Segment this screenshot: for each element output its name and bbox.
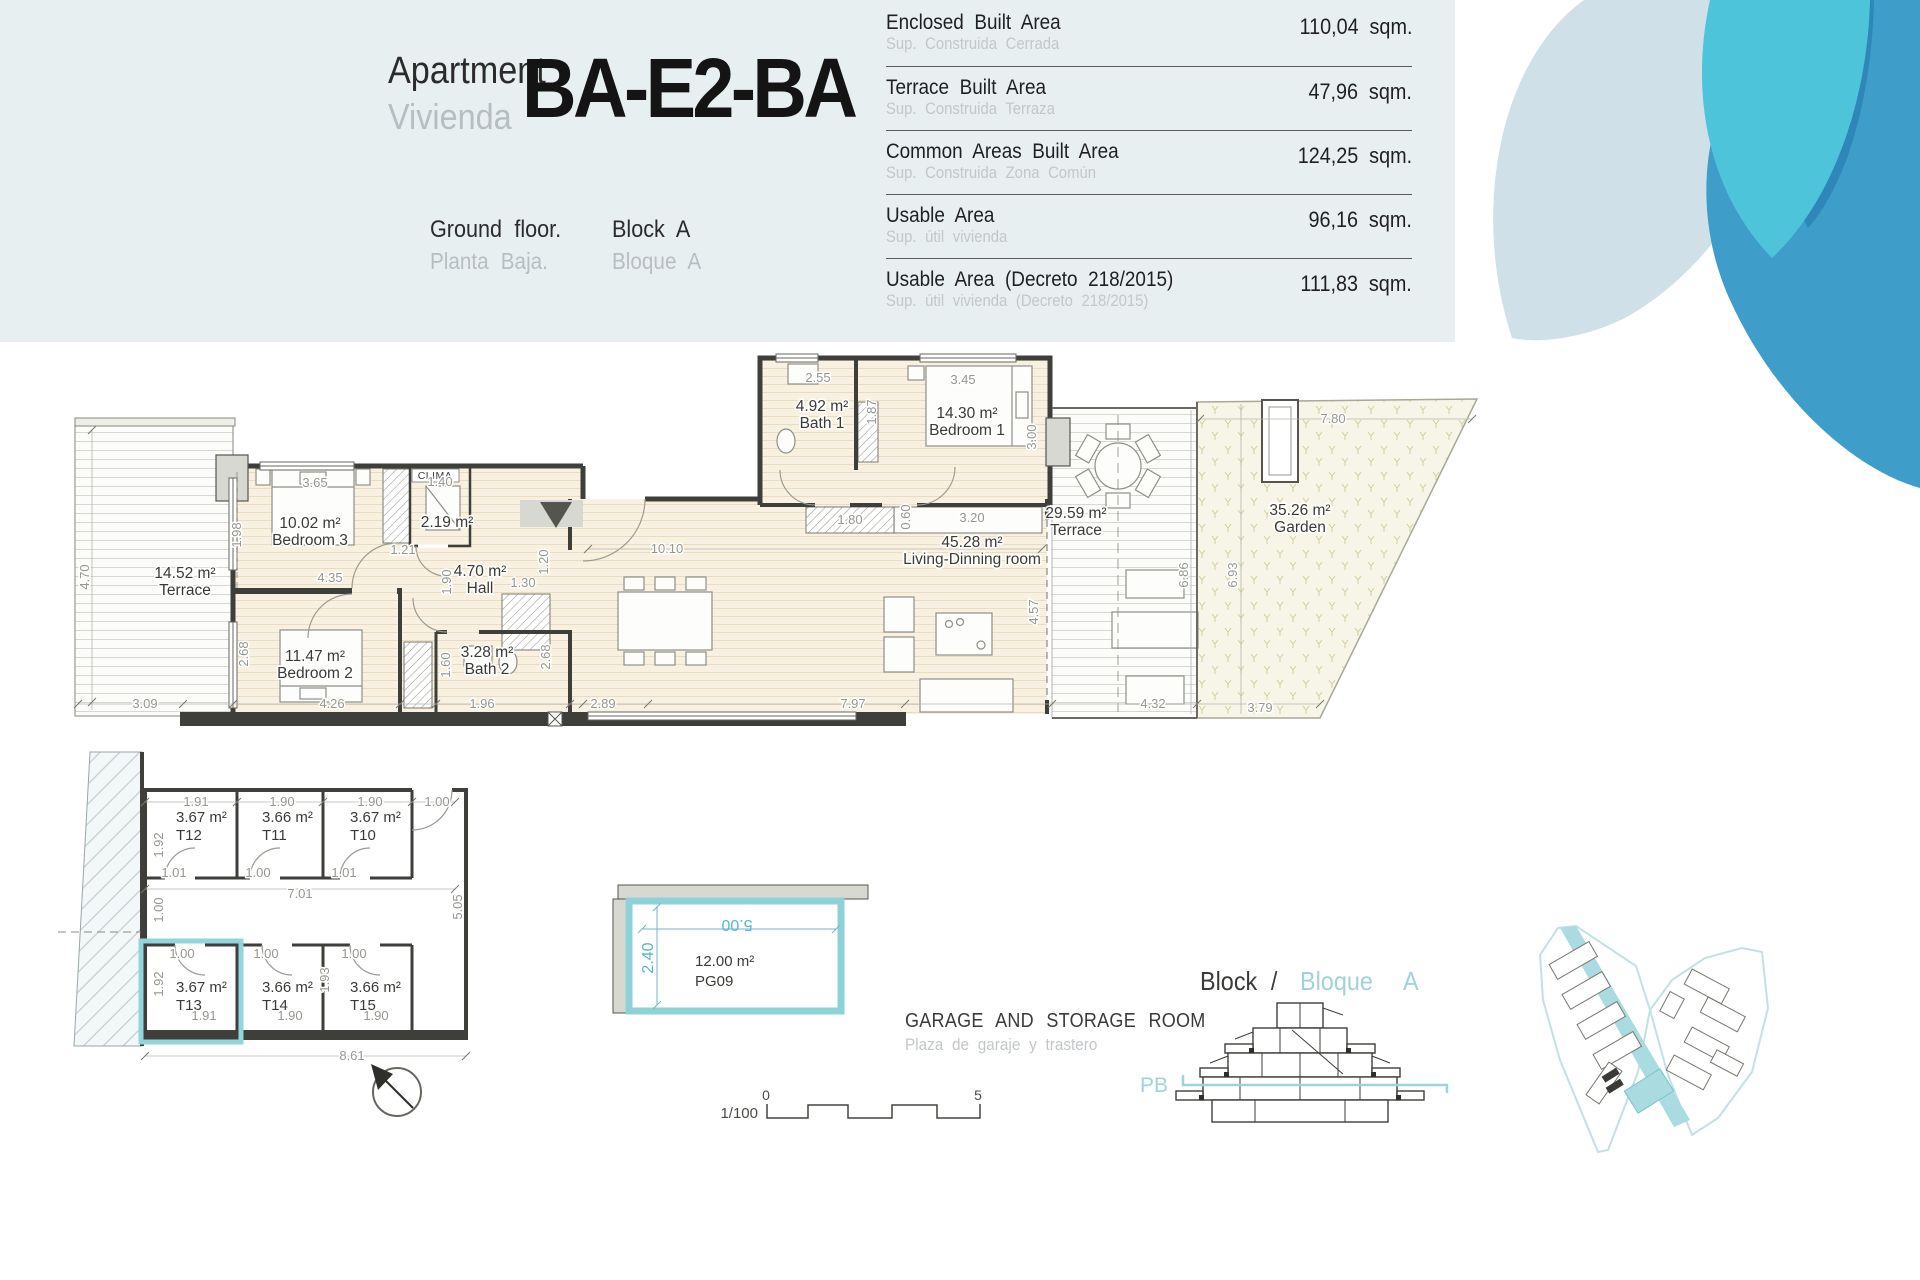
- area-table-row: Terrace Built Area Sup. Construida Terra…: [886, 66, 1412, 130]
- garage-code-label: PG09: [695, 973, 733, 990]
- area-row-value: 96,16 sqm.: [1309, 207, 1412, 233]
- storage-dimension-label: 1.00: [245, 865, 270, 880]
- area-row-value: 124,25 sqm.: [1298, 143, 1412, 169]
- shaft-box: [548, 712, 562, 726]
- storage-room-code-label: T10: [350, 827, 376, 844]
- storage-dimension-label: 1.90: [277, 1008, 302, 1023]
- room-area-label: 11.47 m²: [285, 648, 345, 665]
- dimension-label: 4.57: [1026, 599, 1041, 624]
- storage-dimension-label: 1.90: [357, 794, 382, 809]
- block-letter: A: [1403, 966, 1419, 997]
- dimension-label: 0.60: [898, 504, 913, 529]
- room-area-label: 4.92 m²: [796, 398, 849, 415]
- storage-dimension-label: 5.05: [450, 894, 465, 919]
- apartment-label-es: Vivienda: [388, 96, 525, 138]
- site-plan: [1540, 926, 1768, 1152]
- dimension-label: 3.20: [959, 510, 984, 525]
- dimension-label: 1.40: [427, 474, 452, 489]
- dimension-label: 3.09: [132, 696, 157, 711]
- area-row-sublabel: Sup. Construida Terraza: [886, 100, 1055, 119]
- dimension-label: 4.26: [319, 696, 344, 711]
- dimension-label: 1.20: [536, 549, 551, 574]
- storage-dimension-label: 1.91: [183, 794, 208, 809]
- garage-width-dim: 5.00: [721, 916, 752, 933]
- room-name-label: Bedroom 1: [929, 422, 1005, 439]
- dimension-label: 1.21: [390, 542, 415, 557]
- storage-room-labels: 3.67 m²T123.66 m²T113.67 m²T103.67 m²T13…: [176, 809, 401, 1014]
- dimension-label: 6.86: [1176, 562, 1191, 587]
- scale-fraction-label: 1/100: [720, 1105, 758, 1122]
- floor-label-es: Planta Baja.: [430, 248, 561, 275]
- dimension-label: 10.10: [651, 541, 684, 556]
- storage-dimension-label: 1.92: [151, 971, 166, 996]
- storage-room-code-label: T12: [176, 827, 202, 844]
- room-name-label: Garden: [1274, 519, 1326, 536]
- storage-room-area-label: 3.67 m²: [350, 809, 401, 826]
- garage-area-label: 12.00 m²: [695, 953, 754, 970]
- apartment-code: BA-E2-BA: [522, 40, 891, 137]
- room-area-label: 35.26 m²: [1269, 502, 1330, 519]
- storage-dimension-label: 1.00: [424, 794, 449, 809]
- dimension-label: 4.70: [77, 564, 92, 589]
- room-name-label: Terrace: [1050, 522, 1102, 539]
- room-name-label: Bath 2: [465, 661, 510, 678]
- pb-level-label: PB: [1140, 1074, 1168, 1098]
- dimension-label: 3.65: [302, 475, 327, 490]
- plan-sheet: CLIMA: [0, 0, 1920, 1280]
- storage-dimension-label: 1.91: [191, 1008, 216, 1023]
- room-area-label: 4.70 m²: [454, 563, 507, 580]
- room-name-label: Living-Dinning room: [903, 551, 1041, 568]
- dimension-label: 2.89: [590, 696, 615, 711]
- room-name-label: Hall: [467, 580, 494, 597]
- area-table-row: Usable Area (Decreto 218/2015) Sup. útil…: [886, 258, 1412, 322]
- area-table: Enclosed Built Area Sup. Construida Cerr…: [886, 2, 1412, 322]
- dimension-label: 2.68: [236, 641, 251, 666]
- block-title-en: Block /: [1200, 966, 1277, 997]
- area-row-value: 47,96 sqm.: [1309, 79, 1412, 105]
- dimension-label: 6.93: [1225, 562, 1240, 587]
- dimension-label: 7.97: [840, 696, 865, 711]
- garage-caption-es: Plaza de garaje y trastero: [905, 1035, 1097, 1055]
- room-area-label: 2.19 m²: [421, 514, 474, 531]
- area-row-label: Usable Area (Decreto 218/2015): [886, 268, 1173, 292]
- area-row-value: 111,83 sqm.: [1301, 271, 1412, 297]
- room-area-label: 10.02 m²: [279, 515, 340, 532]
- area-row-sublabel: Sup. útil vivienda (Decreto 218/2015): [886, 292, 1148, 311]
- storage-dimension-label: 1.00: [341, 946, 366, 961]
- dimension-label: 2.55: [805, 370, 830, 385]
- dimension-label: 1.60: [438, 652, 453, 677]
- scale-bar: 0 5 1/100: [720, 1087, 982, 1122]
- storage-dimension-label: 8.61: [339, 1048, 364, 1063]
- area-row-value: 110,04 sqm.: [1299, 14, 1412, 40]
- decorative-petals: [1493, 0, 1920, 488]
- storage-dimension-label: 7.01: [287, 886, 312, 901]
- garage-depth-dim: 2.40: [640, 942, 657, 973]
- room-area-label: 45.28 m²: [941, 534, 1002, 551]
- storage-room-area-label: 3.67 m²: [176, 979, 227, 996]
- dimension-label: 1.87: [864, 399, 879, 424]
- dimension-label: 7.80: [1320, 411, 1345, 426]
- dimension-label: 4.32: [1140, 696, 1165, 711]
- room-name-label: Bedroom 2: [277, 665, 353, 682]
- area-row-sublabel: Sup. Construida Cerrada: [886, 35, 1059, 54]
- dimension-label: 1.90: [439, 569, 454, 594]
- storage-room-area-label: 3.66 m²: [262, 979, 313, 996]
- garage-caption-en: GARAGE AND STORAGE ROOM: [905, 1010, 1206, 1033]
- room-name-label: Bedroom 3: [272, 532, 348, 549]
- dimension-label: 1.96: [469, 696, 494, 711]
- area-row-label: Common Areas Built Area: [886, 140, 1119, 164]
- storage-room-code-label: T11: [262, 827, 287, 844]
- garage-caption: GARAGE AND STORAGE ROOM Plaza de garaje …: [905, 1010, 1239, 1055]
- dimension-label: 3.45: [950, 372, 975, 387]
- scale-zero-label: 0: [762, 1087, 770, 1103]
- room-area-label: 3.28 m²: [461, 644, 514, 661]
- storage-dimension-label: 1.01: [161, 865, 186, 880]
- dimension-label: 3.79: [1247, 700, 1272, 715]
- storage-dimension-label: 1.93: [317, 967, 332, 992]
- floor-label-en: Ground floor.: [430, 216, 576, 244]
- room-name-label: Terrace: [159, 582, 211, 599]
- area-row-sublabel: Sup. útil vivienda: [886, 228, 1007, 247]
- room-area-label: 14.30 m²: [936, 405, 997, 422]
- storage-dimension-label: 1.00: [151, 897, 166, 922]
- area-row-sublabel: Sup. Construida Zona Común: [886, 164, 1096, 183]
- dimension-label: 3.00: [1024, 424, 1039, 449]
- area-table-row: Usable Area Sup. útil vivienda 96,16 sqm…: [886, 194, 1412, 258]
- storage-dimension-label: 1.92: [151, 832, 166, 857]
- area-row-label: Enclosed Built Area: [886, 11, 1061, 35]
- area-row-label: Usable Area: [886, 204, 994, 228]
- storage-dimension-label: 1.90: [363, 1008, 388, 1023]
- room-name-label: Bath 1: [800, 415, 845, 432]
- area-table-row: Enclosed Built Area Sup. Construida Cerr…: [886, 2, 1412, 66]
- north-arrow-icon: [371, 1064, 421, 1116]
- storage-dimension-label: 1.00: [253, 946, 278, 961]
- dimension-label: 1.98: [229, 522, 244, 547]
- garden-planter: [1262, 400, 1298, 482]
- scale-five-label: 5: [974, 1087, 982, 1103]
- dimension-label: 4.35: [317, 570, 342, 585]
- block-section-title: Block /BloqueA: [1200, 966, 1420, 997]
- room-area-label: 14.52 m²: [154, 565, 215, 582]
- storage-dimension-label: 1.90: [269, 794, 294, 809]
- storage-dimension-label: 1.01: [331, 865, 356, 880]
- block-title-es: Bloque: [1300, 966, 1373, 997]
- dimension-label: 1.30: [510, 575, 535, 590]
- area-table-row: Common Areas Built Area Sup. Construida …: [886, 130, 1412, 194]
- garage-plan: 5.00 2.40 12.00 m² PG09: [613, 885, 868, 1013]
- storage-room-area-label: 3.66 m²: [350, 979, 401, 996]
- storage-room-area-label: 3.66 m²: [262, 809, 313, 826]
- dimension-label: 1.80: [837, 512, 862, 527]
- block-label-es: Bloque A: [612, 248, 711, 275]
- storage-dimension-label: 1.00: [169, 946, 194, 961]
- dimension-label: 2.68: [538, 644, 553, 669]
- area-row-label: Terrace Built Area: [886, 76, 1046, 100]
- storage-room-area-label: 3.67 m²: [176, 809, 227, 826]
- room-area-label: 29.59 m²: [1045, 505, 1106, 522]
- block-label-en: Block A: [612, 216, 699, 244]
